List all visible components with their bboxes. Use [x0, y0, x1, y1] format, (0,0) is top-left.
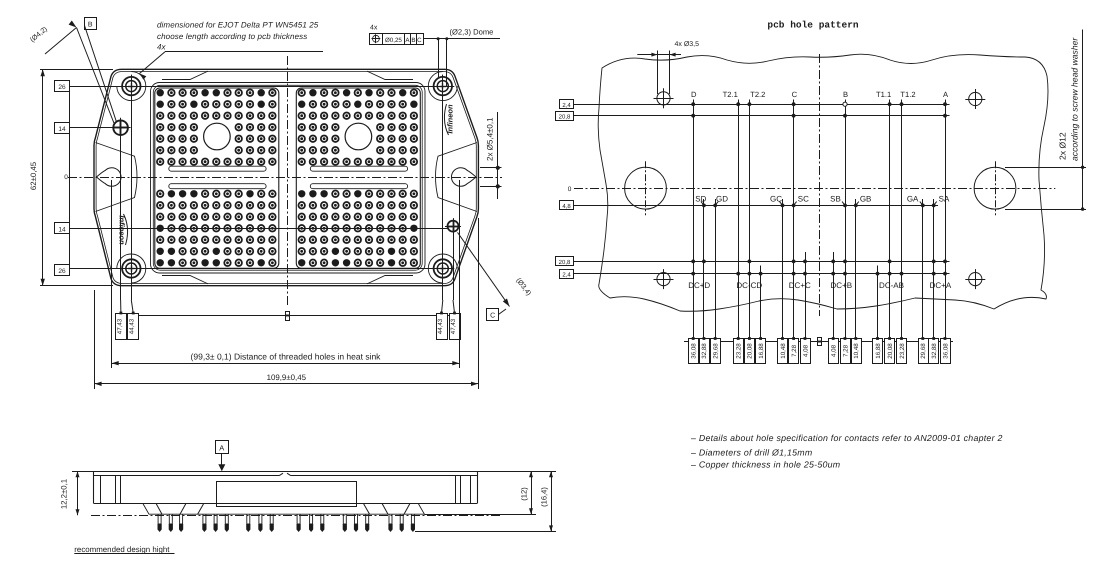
svg-text:109,9±0,45: 109,9±0,45: [267, 373, 307, 382]
svg-text:DC+A: DC+A: [930, 281, 952, 290]
svg-text:4,8: 4,8: [562, 203, 571, 210]
svg-text:4x Ø3,5: 4x Ø3,5: [675, 40, 700, 48]
svg-text:C: C: [417, 37, 422, 44]
svg-text:DC+C: DC+C: [789, 281, 811, 290]
svg-text:0: 0: [64, 174, 68, 181]
svg-text:36,08: 36,08: [691, 343, 698, 359]
svg-text:DC-CD: DC-CD: [736, 281, 762, 290]
svg-text:14: 14: [58, 126, 66, 133]
svg-text:36,08: 36,08: [942, 343, 949, 359]
svg-text:B: B: [411, 37, 415, 44]
svg-text:7,28: 7,28: [791, 344, 798, 357]
svg-text:(Ø2,3) Dome: (Ø2,3) Dome: [450, 28, 494, 37]
svg-text:12,2±0,1: 12,2±0,1: [60, 479, 69, 509]
svg-text:C: C: [792, 90, 798, 99]
svg-text:DC-AB: DC-AB: [879, 281, 904, 290]
svg-text:SC: SC: [798, 195, 809, 204]
svg-text:62±0,45: 62±0,45: [29, 161, 38, 190]
svg-text:0: 0: [568, 186, 572, 193]
svg-text:B: B: [843, 90, 848, 99]
svg-text:(16,4): (16,4): [540, 487, 549, 507]
svg-text:29,68: 29,68: [920, 343, 927, 359]
svg-text:Infineon: Infineon: [446, 104, 455, 134]
svg-text:T2.2: T2.2: [750, 90, 765, 99]
svg-text:20,8: 20,8: [559, 259, 571, 266]
svg-text:14: 14: [58, 227, 66, 234]
svg-text:23,28: 23,28: [736, 343, 743, 359]
svg-text:GA: GA: [907, 195, 919, 204]
svg-text:2x Ø12: 2x Ø12: [1058, 132, 1068, 160]
svg-text:4,08: 4,08: [831, 344, 838, 357]
svg-text:GB: GB: [860, 195, 872, 204]
svg-text:29,68: 29,68: [713, 343, 720, 359]
svg-text:dimensioned for EJOT Delta PT: dimensioned for EJOT Delta PT WN5451 25: [157, 21, 319, 30]
svg-text:(12): (12): [520, 487, 529, 501]
svg-text:SD: SD: [695, 195, 706, 204]
svg-text:47,43: 47,43: [450, 318, 457, 334]
svg-text:B: B: [88, 22, 93, 29]
svg-text:32,88: 32,88: [931, 343, 938, 359]
svg-text:16,88: 16,88: [875, 343, 882, 359]
svg-text:44,43: 44,43: [129, 318, 136, 334]
svg-text:SA: SA: [939, 195, 950, 204]
svg-text:10,48: 10,48: [780, 343, 787, 359]
svg-text:GD: GD: [716, 195, 728, 204]
svg-text:choose length according to pcb: choose length according to pcb thickness: [157, 32, 307, 41]
svg-text:32,88: 32,88: [701, 343, 708, 359]
svg-text:4x: 4x: [157, 43, 166, 52]
svg-text:according to screw head washer: according to screw head washer: [1070, 37, 1080, 161]
svg-text:2,4: 2,4: [562, 271, 571, 278]
svg-text:20,8: 20,8: [559, 113, 571, 120]
svg-text:10,48: 10,48: [853, 343, 860, 359]
svg-text:recommended design hight: recommended design hight: [74, 545, 170, 554]
svg-text:SB: SB: [830, 195, 841, 204]
svg-text:2,4: 2,4: [562, 102, 571, 109]
svg-text:23,28: 23,28: [899, 343, 906, 359]
svg-text:7,28: 7,28: [842, 344, 849, 357]
svg-text:– Details about hole specifica: – Details about hole specification for c…: [690, 433, 1003, 443]
svg-text:A: A: [219, 443, 224, 452]
svg-text:20,08: 20,08: [887, 343, 894, 359]
svg-text:GC: GC: [770, 195, 782, 204]
svg-text:T2.1: T2.1: [723, 90, 738, 99]
svg-text:T1.2: T1.2: [900, 90, 915, 99]
svg-text:C: C: [490, 313, 495, 320]
svg-text:– Diameters of drill Ø1,15mm: – Diameters of drill Ø1,15mm: [690, 448, 812, 458]
svg-text:4x: 4x: [370, 25, 378, 32]
svg-text:16,88: 16,88: [758, 343, 765, 359]
svg-text:4,08: 4,08: [802, 344, 809, 357]
svg-text:20,08: 20,08: [747, 343, 754, 359]
svg-text:DC+D: DC+D: [688, 281, 710, 290]
svg-text:DC+B: DC+B: [831, 281, 853, 290]
svg-text:Infineon: Infineon: [118, 215, 127, 245]
svg-text:pcb hole pattern: pcb hole pattern: [767, 20, 859, 31]
svg-text:26: 26: [58, 84, 66, 91]
svg-text:44,43: 44,43: [437, 318, 444, 334]
svg-text:D: D: [691, 90, 697, 99]
svg-text:(99,3± 0,1) Distance of thread: (99,3± 0,1) Distance of threaded holes i…: [191, 352, 382, 362]
svg-text:– Copper thickness in hole 25-: – Copper thickness in hole 25-50um: [690, 460, 840, 470]
svg-text:T1.1: T1.1: [876, 90, 891, 99]
svg-text:47,43: 47,43: [116, 318, 123, 334]
svg-text:2x Ø5,4±0,1: 2x Ø5,4±0,1: [486, 117, 495, 161]
svg-text:Ø0,25: Ø0,25: [385, 37, 402, 44]
svg-text:26: 26: [58, 268, 66, 275]
